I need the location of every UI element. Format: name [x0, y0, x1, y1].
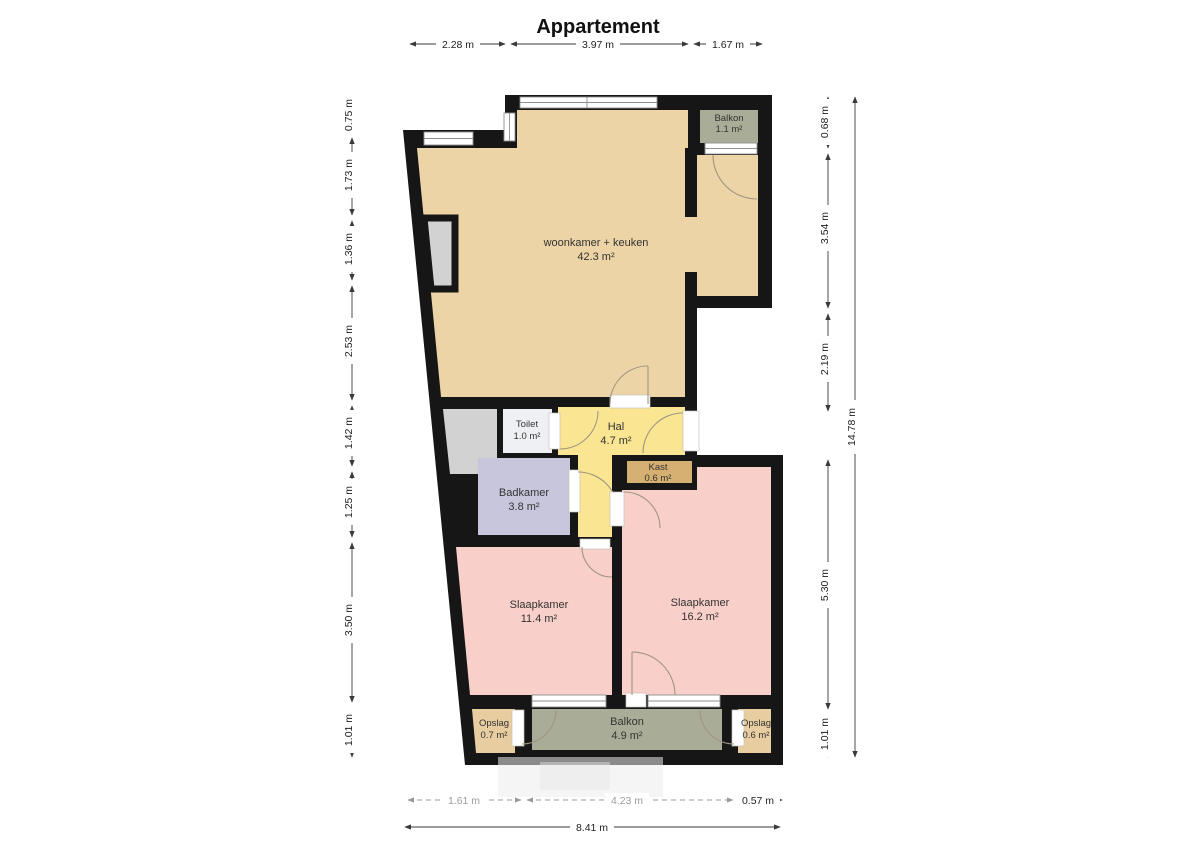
- svg-text:0.6 m²: 0.6 m²: [743, 730, 770, 741]
- floor-plan-svg: Appartement: [0, 0, 1200, 849]
- svg-text:Balkon: Balkon: [610, 716, 644, 728]
- label-kast: Kast 0.6 m²: [645, 462, 672, 484]
- svg-text:1.42 m: 1.42 m: [343, 417, 355, 449]
- svg-text:1.36 m: 1.36 m: [343, 233, 355, 265]
- svg-text:3.8 m²: 3.8 m²: [508, 501, 540, 513]
- svg-text:4.23 m: 4.23 m: [611, 795, 643, 807]
- svg-text:Badkamer: Badkamer: [499, 487, 549, 499]
- svg-text:42.3 m²: 42.3 m²: [577, 251, 615, 263]
- svg-text:woonkamer + keuken: woonkamer + keuken: [543, 237, 649, 249]
- svg-text:Opslag: Opslag: [741, 718, 771, 729]
- svg-text:16.2 m²: 16.2 m²: [681, 611, 719, 623]
- svg-text:4.7 m²: 4.7 m²: [600, 435, 632, 447]
- dim-top: 2.28 m 3.97 m 1.67 m: [410, 37, 762, 51]
- dim-right: 0.68 m 3.54 m 2.19 m 5.30 m 1.01 m: [819, 97, 835, 757]
- dim-right-total: 14.78 m: [846, 97, 862, 757]
- svg-text:11.4 m²: 11.4 m²: [521, 613, 558, 625]
- svg-text:3.50 m: 3.50 m: [343, 604, 355, 636]
- window-top-left: [424, 132, 473, 145]
- wall-below-balkon: [685, 148, 697, 217]
- svg-text:Hal: Hal: [608, 421, 625, 433]
- svg-text:3.97 m: 3.97 m: [582, 39, 614, 51]
- window-top-main: [520, 97, 657, 108]
- svg-text:0.6 m²: 0.6 m²: [645, 473, 672, 484]
- svg-text:0.7 m²: 0.7 m²: [481, 730, 508, 741]
- label-balkon-top: Balkon 1.1 m²: [714, 113, 743, 135]
- svg-text:0.75 m: 0.75 m: [343, 99, 355, 131]
- svg-text:14.78 m: 14.78 m: [846, 408, 858, 446]
- svg-text:8.41 m: 8.41 m: [576, 822, 608, 834]
- dim-bottom-total: 8.41 m: [405, 820, 780, 834]
- svg-text:Toilet: Toilet: [516, 419, 539, 430]
- svg-text:0.57 m: 0.57 m: [742, 795, 774, 807]
- svg-text:3.54 m: 3.54 m: [819, 212, 831, 244]
- svg-text:4.9 m²: 4.9 m²: [611, 730, 643, 742]
- label-toilet: Toilet 1.0 m²: [514, 419, 541, 442]
- svg-text:1.1 m²: 1.1 m²: [716, 124, 743, 135]
- svg-text:1.61 m: 1.61 m: [448, 795, 480, 807]
- svg-text:0.68 m: 0.68 m: [819, 106, 831, 138]
- svg-text:Slaapkamer: Slaapkamer: [510, 599, 569, 611]
- svg-text:1.25 m: 1.25 m: [343, 486, 355, 518]
- window-slaapkamer-rechts: [648, 695, 720, 707]
- dim-left: 0.75 m 1.73 m 1.36 m 2.53 m 1.42 m 1.25 …: [343, 92, 359, 757]
- floor-plan-page: Appartement: [0, 0, 1200, 849]
- window-step: [504, 113, 515, 141]
- svg-text:Slaapkamer: Slaapkamer: [671, 597, 730, 609]
- watermark-smear-2: [540, 762, 610, 790]
- svg-text:2.19 m: 2.19 m: [819, 343, 831, 375]
- svg-text:5.30 m: 5.30 m: [819, 569, 831, 601]
- svg-text:2.53 m: 2.53 m: [343, 325, 355, 357]
- svg-text:Balkon: Balkon: [714, 113, 743, 124]
- svg-text:Kast: Kast: [648, 462, 667, 473]
- svg-text:1.0 m²: 1.0 m²: [514, 431, 541, 442]
- window-balkon-top-door: [705, 143, 757, 154]
- svg-text:1.73 m: 1.73 m: [343, 159, 355, 191]
- page-title: Appartement: [536, 16, 660, 38]
- label-opslag-links: Opslag 0.7 m²: [479, 718, 509, 741]
- svg-text:Opslag: Opslag: [479, 718, 509, 729]
- svg-text:1.01 m: 1.01 m: [343, 714, 355, 746]
- svg-text:2.28 m: 2.28 m: [442, 39, 474, 51]
- room-slaapkamer-rechts: [622, 467, 771, 695]
- svg-text:1.01 m: 1.01 m: [819, 718, 831, 750]
- svg-text:1.67 m: 1.67 m: [712, 39, 744, 51]
- label-opslag-rechts: Opslag 0.6 m²: [741, 718, 771, 741]
- shaft-left-wall: [424, 218, 455, 289]
- window-slaapkamer-links: [532, 695, 606, 707]
- wall-notch: [685, 272, 697, 308]
